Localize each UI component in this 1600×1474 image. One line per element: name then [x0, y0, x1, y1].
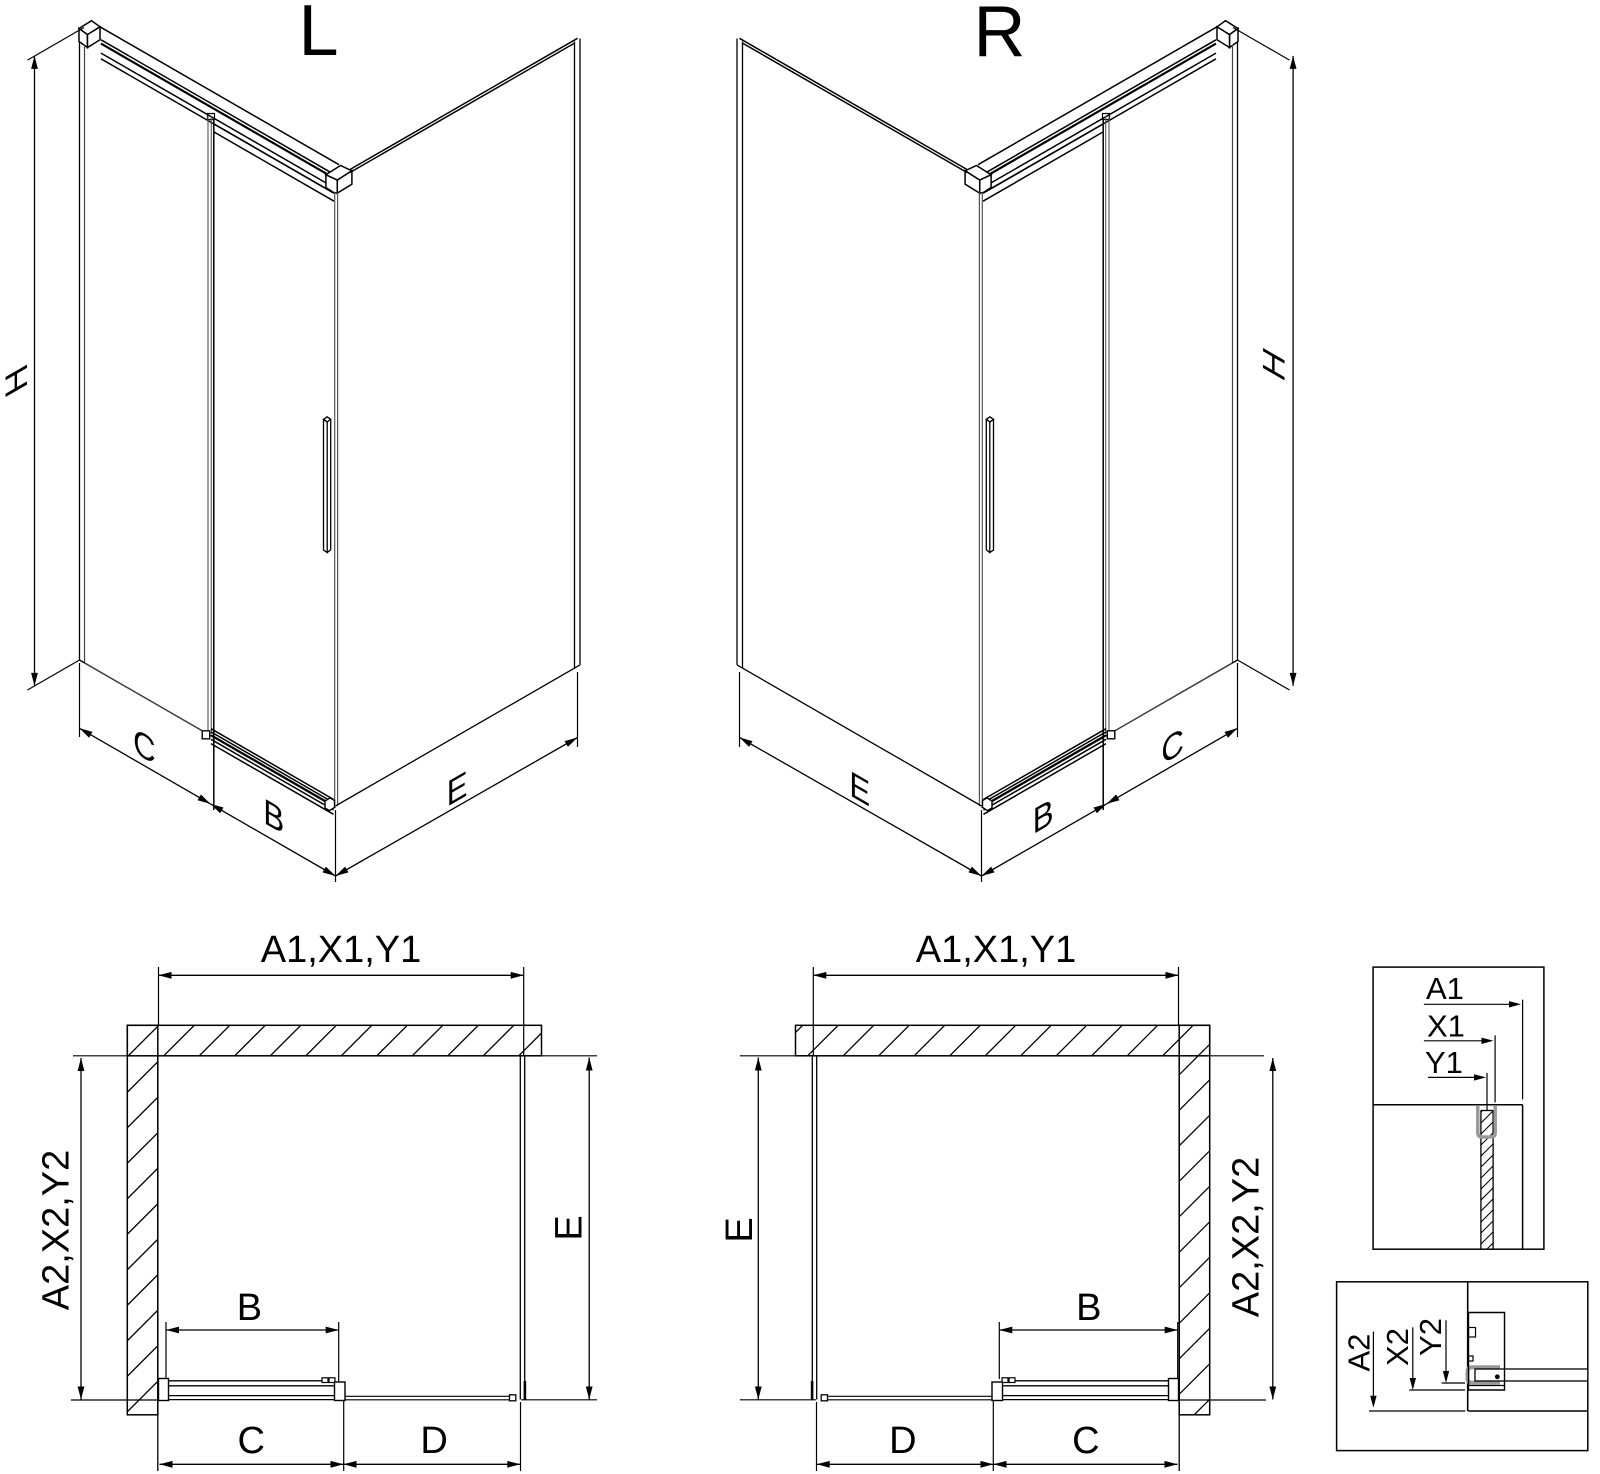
svg-text:B: B — [1076, 1287, 1101, 1329]
svg-text:A1,X1,Y1: A1,X1,Y1 — [261, 929, 422, 971]
svg-text:Y2: Y2 — [1413, 1318, 1448, 1356]
svg-text:A1: A1 — [1426, 971, 1464, 1006]
svg-text:L: L — [298, 0, 338, 71]
svg-text:A1,X1,Y1: A1,X1,Y1 — [916, 929, 1077, 971]
svg-text:X1: X1 — [1427, 1009, 1465, 1044]
svg-text:X2: X2 — [1380, 1328, 1415, 1366]
svg-text:A2: A2 — [1342, 1334, 1377, 1372]
svg-text:D: D — [420, 1420, 447, 1462]
svg-text:A2,X2,Y2: A2,X2,Y2 — [1226, 1157, 1268, 1318]
svg-text:A2,X2,Y2: A2,X2,Y2 — [36, 1150, 78, 1311]
svg-text:C: C — [1072, 1420, 1099, 1462]
svg-text:C: C — [237, 1420, 264, 1462]
svg-text:Y1: Y1 — [1425, 1045, 1463, 1080]
svg-text:R: R — [974, 0, 1026, 72]
svg-text:E: E — [719, 1217, 761, 1242]
svg-text:D: D — [889, 1420, 916, 1462]
svg-text:E: E — [549, 1215, 591, 1240]
svg-text:B: B — [237, 1287, 262, 1329]
